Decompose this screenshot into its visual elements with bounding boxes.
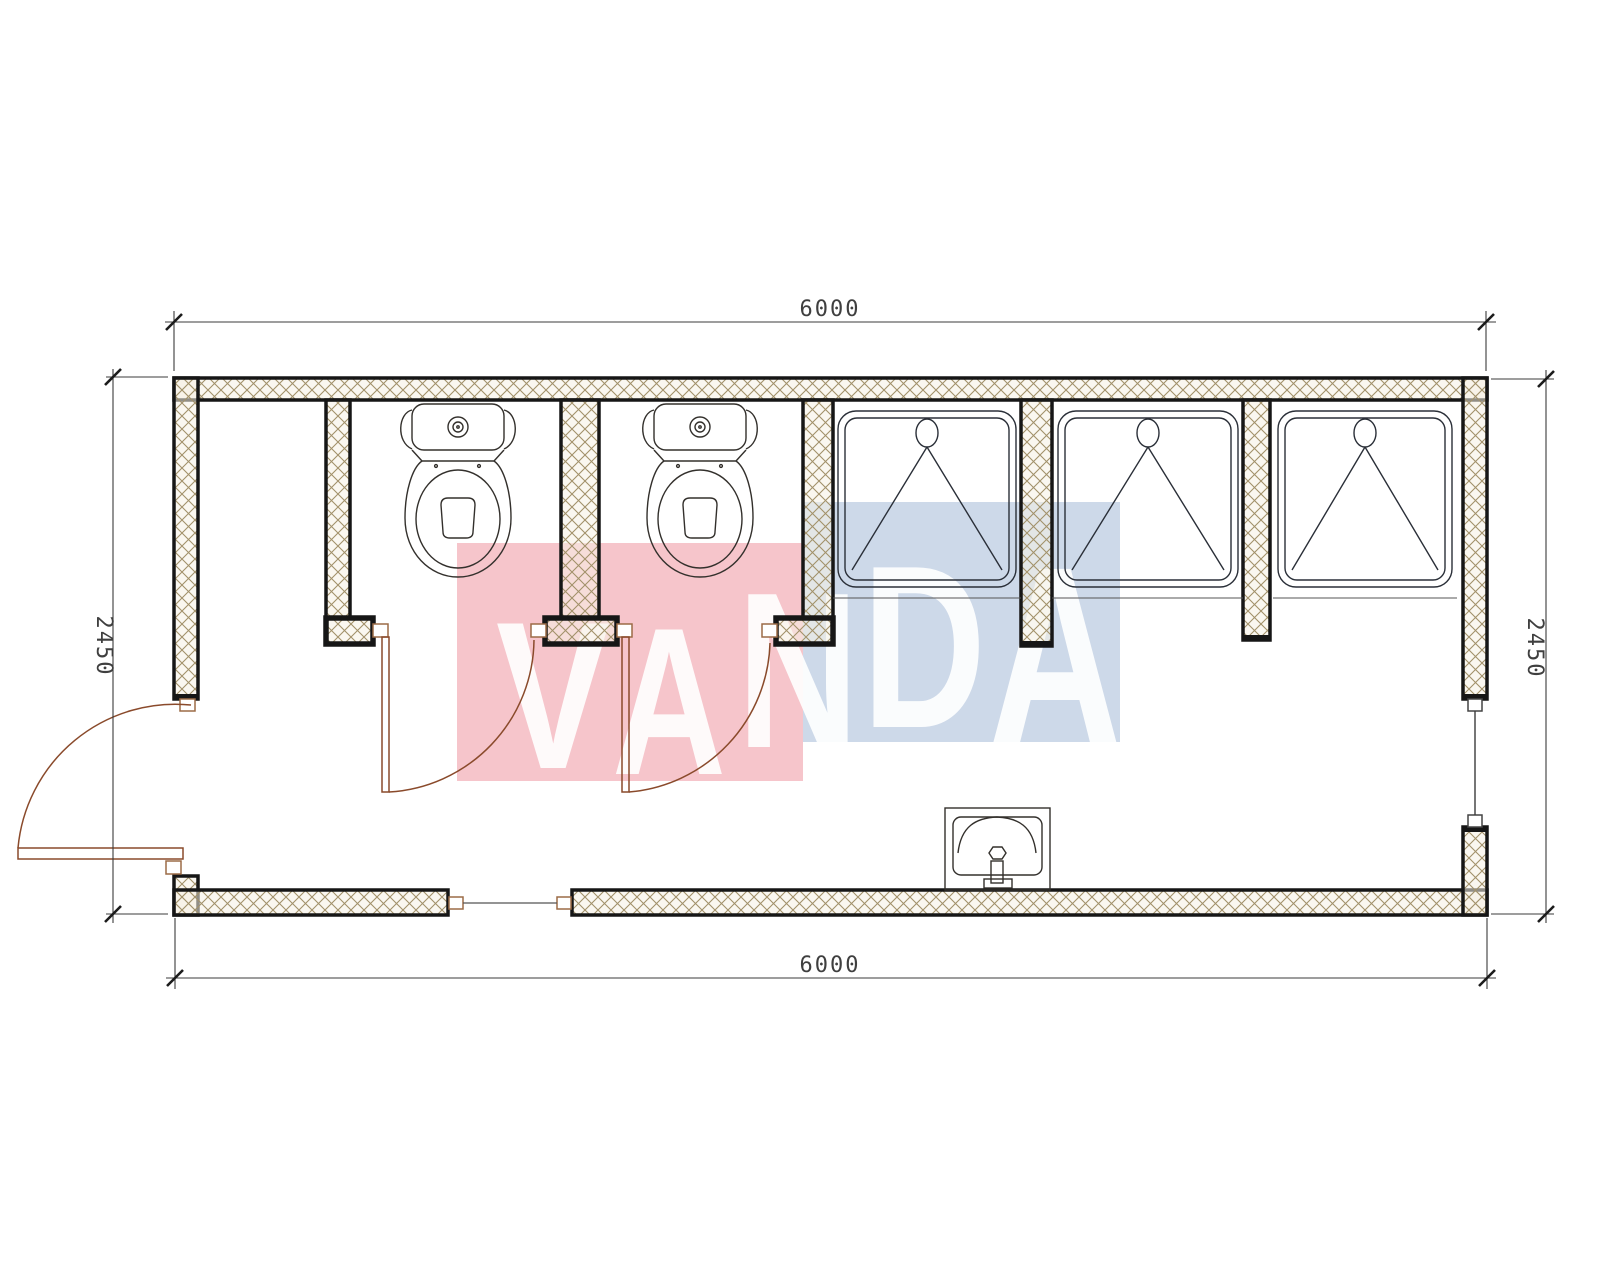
wall-right-lower [1463, 827, 1487, 915]
entry-door [18, 704, 191, 859]
front-stub-wc1-wc2 [545, 618, 617, 644]
partition-shower2-shower3 [1243, 400, 1270, 640]
dimension-left-label: 2450 [91, 616, 116, 677]
watermark-letter: N [737, 547, 859, 795]
shower-tray [1278, 411, 1452, 587]
partition-wc2-shower1 [803, 400, 833, 618]
watermark-letter: A [988, 514, 1122, 800]
shower-head-icon [1354, 419, 1376, 447]
washbasin [945, 808, 1050, 890]
faucet-head [989, 847, 1006, 859]
washbasin-bowl [953, 817, 1042, 875]
partition-shower1-shower2 [1021, 400, 1052, 646]
wall-bottom-left [174, 890, 448, 915]
faucet-stem [991, 861, 1003, 883]
floor-plan-drawing: V A N D A [0, 0, 1600, 1280]
wall-left [174, 378, 198, 699]
shower-tray-inner [1285, 418, 1445, 580]
wall-top [174, 378, 1487, 400]
front-stub-wc1 [326, 618, 373, 644]
entry-door-swing-arc [18, 704, 191, 848]
floor-plan-canvas: V A N D A [0, 0, 1600, 1280]
wall-bottom-main [572, 890, 1487, 915]
dimension-bottom-label: 6000 [800, 953, 861, 978]
shower-spray-lines [1292, 447, 1438, 570]
wall-right-upper [1463, 378, 1487, 699]
toilet-door-1-leaf [382, 637, 389, 792]
partition-wc1-wc2 [561, 400, 599, 618]
entry-door-leaf [18, 848, 183, 859]
shower-head-icon [916, 419, 938, 447]
shower-head-icon [1137, 419, 1159, 447]
front-stub-wc2 [776, 618, 833, 644]
washbasin-counter [945, 808, 1050, 890]
dimension-top-label: 6000 [800, 297, 861, 322]
watermark-letter: D [862, 518, 986, 777]
partition-vestibule-wc1 [326, 400, 350, 618]
dimension-right-label: 2450 [1522, 618, 1547, 679]
shower-stall-3 [1278, 411, 1452, 587]
